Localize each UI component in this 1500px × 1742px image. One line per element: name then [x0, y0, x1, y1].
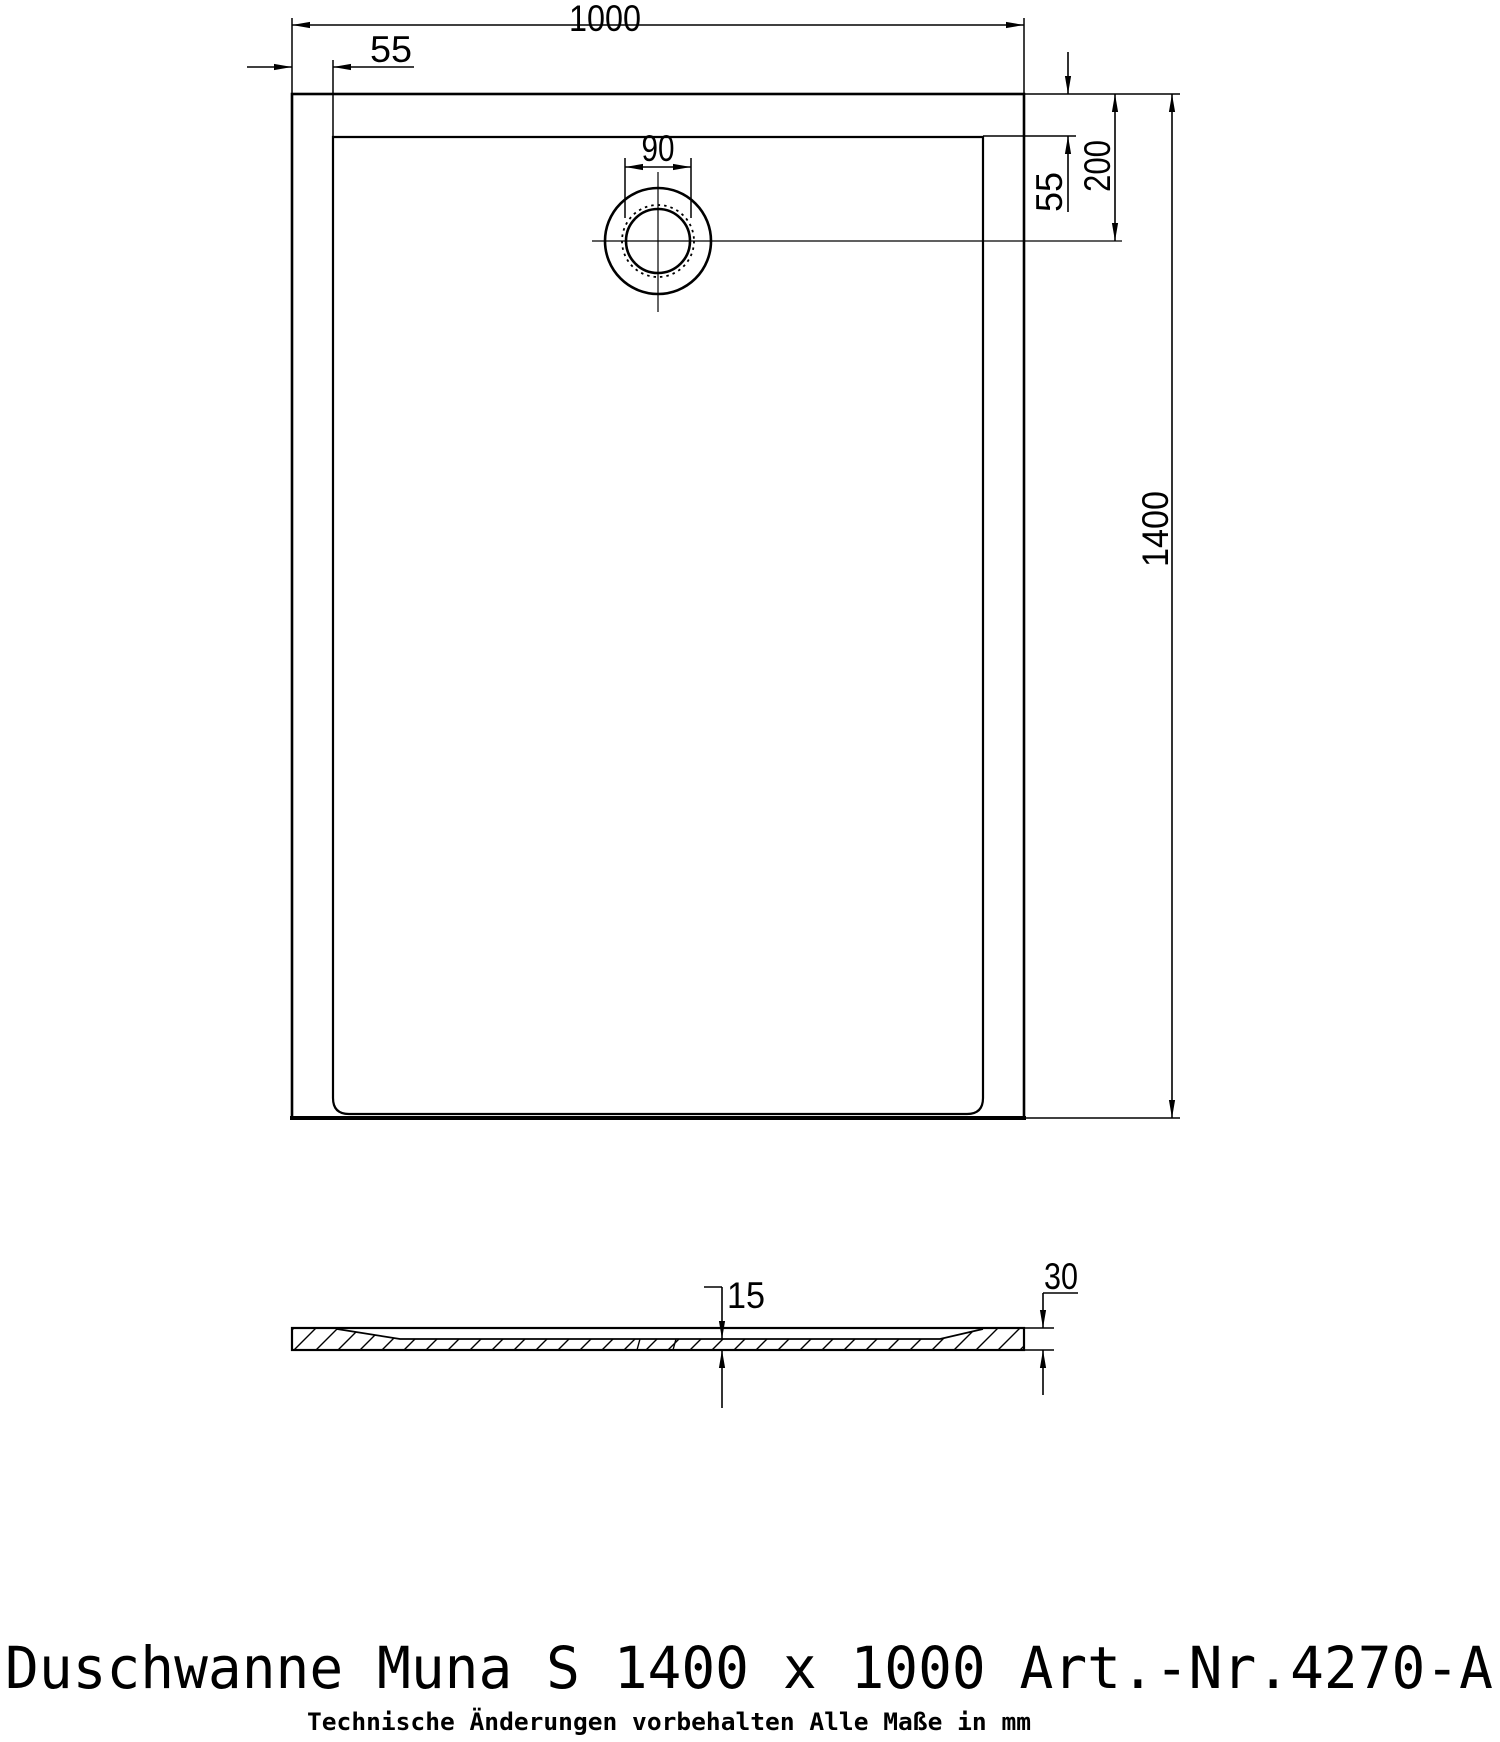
dim-label-rim-top-right: 55: [1029, 172, 1070, 212]
dim-label-overall-length: 1400: [1135, 491, 1176, 567]
section-dimensions: 15 30: [704, 1256, 1078, 1408]
dim-label-drain-diameter: 90: [642, 128, 675, 169]
section-view: [270, 1324, 1054, 1352]
drawing-sheet: 1000 55 90 55 200 1400: [0, 0, 1500, 1742]
technical-drawing-canvas: 1000 55 90 55 200 1400: [0, 0, 1500, 1742]
section-floor-line: [337, 1329, 983, 1339]
drawing-title: Duschwanne Muna S 1400 x 1000 Art.-Nr.42…: [5, 1634, 1493, 1702]
dim-label-floor-thickness: 15: [727, 1275, 765, 1316]
dim-label-drain-offset: 200: [1077, 140, 1118, 192]
plan-view: [290, 94, 1122, 1118]
dim-label-overall-width: 1000: [569, 0, 641, 39]
drawing-footnote: Technische Änderungen vorbehalten Alle M…: [307, 1707, 1031, 1736]
dim-label-rim-left: 55: [370, 29, 412, 70]
plan-dimensions: 1000 55 90 55 200 1400: [247, 0, 1180, 1118]
dim-label-edge-height: 30: [1044, 1256, 1078, 1297]
